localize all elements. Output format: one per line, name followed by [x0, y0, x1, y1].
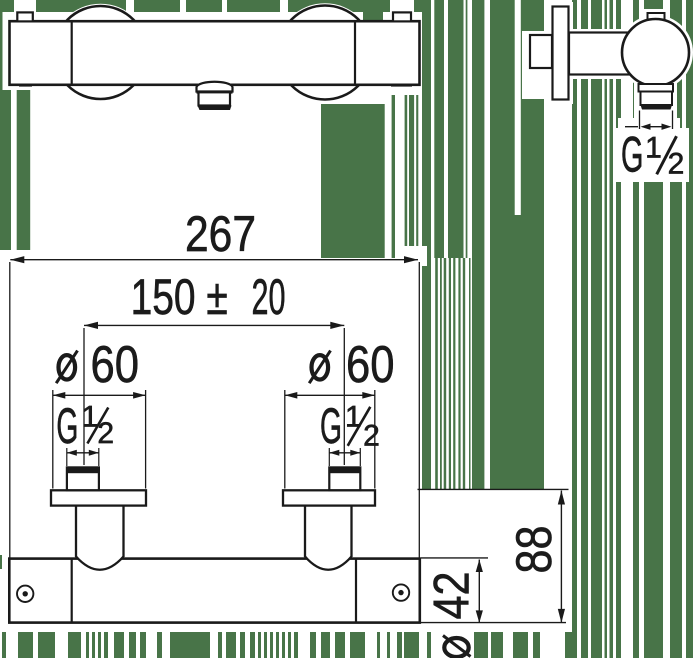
svg-text:2: 2	[363, 420, 380, 453]
svg-text:60: 60	[91, 336, 140, 394]
svg-text:88: 88	[506, 526, 562, 574]
svg-text:267: 267	[185, 206, 256, 262]
svg-text:150 ±: 150 ±	[131, 269, 228, 325]
svg-text:2: 2	[668, 148, 685, 181]
svg-text:42: 42	[424, 572, 480, 620]
svg-text:G: G	[320, 398, 342, 454]
svg-text:60: 60	[346, 336, 395, 394]
svg-text:20: 20	[252, 269, 286, 325]
svg-text:1: 1	[645, 132, 662, 165]
svg-text:G: G	[56, 398, 78, 454]
svg-text:2: 2	[97, 417, 114, 450]
svg-text:G: G	[621, 127, 644, 183]
